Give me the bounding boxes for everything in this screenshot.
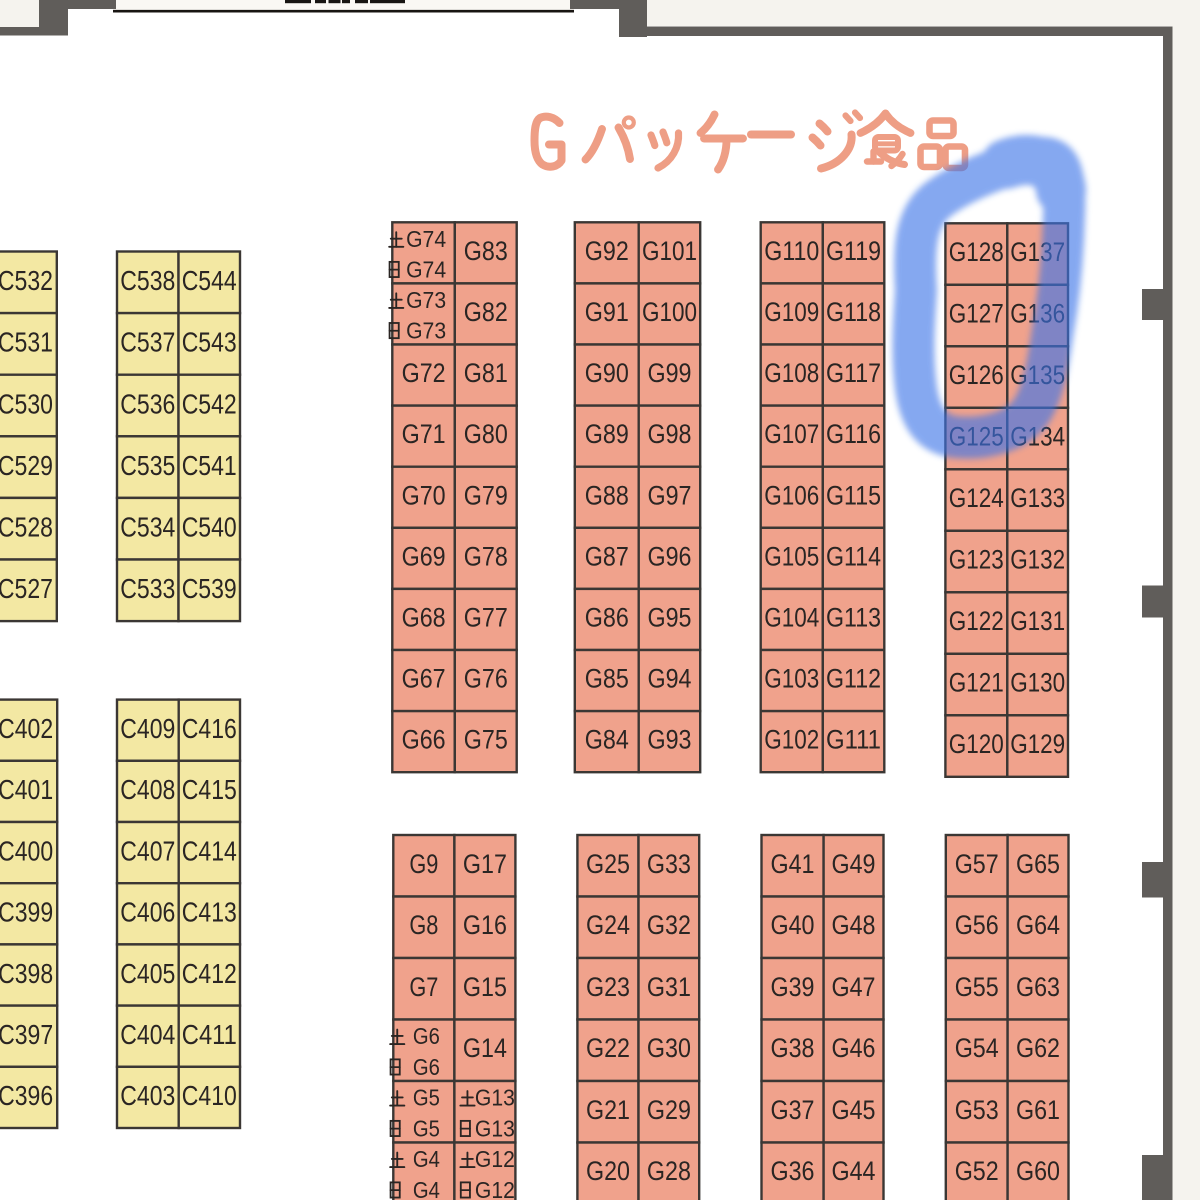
svg-text:G113: G113 — [826, 603, 881, 633]
svg-text:G5: G5 — [413, 1115, 440, 1141]
svg-text:G100: G100 — [642, 297, 697, 327]
svg-text:G20: G20 — [586, 1156, 630, 1186]
svg-text:G53: G53 — [955, 1095, 999, 1125]
svg-text:C397: C397 — [0, 1019, 53, 1050]
svg-text:G69: G69 — [402, 541, 446, 571]
svg-text:G80: G80 — [464, 419, 508, 449]
svg-text:G126: G126 — [949, 360, 1004, 390]
svg-text:G78: G78 — [464, 541, 508, 571]
svg-text:G128: G128 — [949, 237, 1004, 267]
svg-text:C540: C540 — [182, 512, 237, 543]
svg-text:G91: G91 — [585, 297, 629, 327]
svg-text:G9: G9 — [409, 849, 438, 879]
svg-text:G6: G6 — [413, 1054, 440, 1080]
svg-text:G5: G5 — [413, 1085, 440, 1111]
svg-text:G17: G17 — [463, 849, 507, 879]
svg-text:G124: G124 — [949, 483, 1004, 513]
svg-text:G66: G66 — [402, 725, 446, 755]
svg-text:G22: G22 — [586, 1033, 630, 1063]
svg-text:G72: G72 — [402, 358, 446, 388]
svg-text:G108: G108 — [764, 358, 819, 388]
svg-text:G45: G45 — [832, 1095, 876, 1125]
svg-text:G13: G13 — [475, 1085, 515, 1111]
svg-text:C542: C542 — [182, 388, 237, 419]
svg-text:G121: G121 — [949, 668, 1004, 698]
svg-text:G21: G21 — [586, 1095, 630, 1125]
svg-text:C416: C416 — [182, 713, 237, 744]
svg-text:C396: C396 — [0, 1080, 53, 1111]
svg-text:G116: G116 — [826, 419, 881, 449]
svg-text:G31: G31 — [647, 972, 691, 1002]
svg-text:G24: G24 — [586, 910, 630, 940]
svg-text:G86: G86 — [585, 603, 629, 633]
svg-text:G88: G88 — [585, 480, 629, 510]
svg-text:G130: G130 — [1010, 668, 1065, 698]
svg-text:G131: G131 — [1010, 606, 1065, 636]
svg-text:C404: C404 — [120, 1019, 175, 1050]
svg-text:G38: G38 — [771, 1033, 815, 1063]
svg-text:G99: G99 — [648, 358, 692, 388]
svg-text:G85: G85 — [585, 664, 629, 694]
svg-text:G4: G4 — [413, 1177, 440, 1200]
svg-text:C407: C407 — [120, 835, 175, 866]
svg-text:G75: G75 — [464, 725, 508, 755]
svg-text:C531: C531 — [0, 327, 53, 358]
svg-text:G57: G57 — [955, 849, 999, 879]
svg-text:G41: G41 — [771, 849, 815, 879]
svg-text:C415: C415 — [182, 774, 237, 805]
svg-text:G64: G64 — [1016, 910, 1060, 940]
svg-text:C539: C539 — [182, 573, 237, 604]
svg-text:G81: G81 — [464, 358, 508, 388]
svg-text:C411: C411 — [182, 1019, 237, 1050]
svg-text:G44: G44 — [832, 1156, 876, 1186]
svg-text:G54: G54 — [955, 1033, 999, 1063]
svg-text:G62: G62 — [1016, 1033, 1060, 1063]
svg-text:G132: G132 — [1010, 545, 1065, 575]
svg-text:G133: G133 — [1010, 483, 1065, 513]
svg-text:C399: C399 — [0, 897, 53, 928]
svg-text:C528: C528 — [0, 512, 53, 543]
svg-text:C408: C408 — [120, 774, 175, 805]
svg-text:C544: C544 — [182, 265, 237, 296]
svg-text:C534: C534 — [120, 512, 175, 543]
svg-text:C537: C537 — [120, 327, 175, 358]
svg-text:C410: C410 — [182, 1080, 237, 1111]
svg-text:G68: G68 — [402, 603, 446, 633]
svg-text:G13: G13 — [475, 1115, 515, 1141]
svg-text:G112: G112 — [826, 664, 881, 694]
svg-text:G47: G47 — [832, 972, 876, 1002]
svg-text:G83: G83 — [464, 236, 508, 266]
svg-text:G118: G118 — [826, 297, 881, 327]
svg-text:G97: G97 — [648, 480, 692, 510]
svg-text:G30: G30 — [647, 1033, 691, 1063]
svg-text:C401: C401 — [0, 774, 53, 805]
svg-text:G129: G129 — [1010, 729, 1065, 759]
svg-text:G94: G94 — [648, 664, 692, 694]
svg-text:G123: G123 — [949, 545, 1004, 575]
svg-text:G55: G55 — [955, 972, 999, 1002]
svg-text:G70: G70 — [402, 480, 446, 510]
svg-text:G122: G122 — [949, 606, 1004, 636]
svg-text:G71: G71 — [402, 419, 446, 449]
svg-text:G114: G114 — [826, 541, 881, 571]
svg-text:G84: G84 — [585, 725, 629, 755]
svg-text:G115: G115 — [826, 480, 881, 510]
svg-text:G110: G110 — [764, 236, 819, 266]
svg-text:G28: G28 — [647, 1156, 691, 1186]
svg-text:G120: G120 — [949, 729, 1004, 759]
svg-text:G12: G12 — [475, 1146, 515, 1172]
svg-text:G93: G93 — [648, 725, 692, 755]
svg-text:G82: G82 — [464, 297, 508, 327]
svg-text:G74: G74 — [406, 226, 446, 252]
svg-text:G98: G98 — [648, 419, 692, 449]
svg-text:G74: G74 — [406, 256, 446, 282]
svg-text:G101: G101 — [642, 236, 697, 266]
svg-text:G15: G15 — [463, 972, 507, 1002]
svg-text:C532: C532 — [0, 265, 53, 296]
svg-text:G7: G7 — [409, 972, 438, 1002]
svg-text:G37: G37 — [771, 1095, 815, 1125]
svg-text:C535: C535 — [120, 450, 175, 481]
svg-text:C527: C527 — [0, 573, 53, 604]
svg-text:C413: C413 — [182, 897, 237, 928]
svg-text:G77: G77 — [464, 603, 508, 633]
svg-text:C412: C412 — [182, 958, 237, 989]
svg-text:C538: C538 — [120, 265, 175, 296]
svg-text:G102: G102 — [764, 725, 819, 755]
svg-text:C529: C529 — [0, 450, 53, 481]
svg-text:G39: G39 — [771, 972, 815, 1002]
svg-text:G65: G65 — [1016, 849, 1060, 879]
svg-text:G12: G12 — [475, 1177, 515, 1200]
svg-text:G33: G33 — [647, 849, 691, 879]
svg-text:C543: C543 — [182, 327, 237, 358]
svg-text:C414: C414 — [182, 835, 237, 866]
svg-text:G79: G79 — [464, 480, 508, 510]
svg-text:G25: G25 — [586, 849, 630, 879]
svg-text:C403: C403 — [120, 1080, 175, 1111]
svg-text:C530: C530 — [0, 388, 53, 419]
svg-text:C409: C409 — [120, 713, 175, 744]
svg-text:G29: G29 — [647, 1095, 691, 1125]
svg-text:C536: C536 — [120, 388, 175, 419]
svg-text:G60: G60 — [1016, 1156, 1060, 1186]
svg-text:G32: G32 — [647, 910, 691, 940]
svg-text:G48: G48 — [832, 910, 876, 940]
svg-text:C398: C398 — [0, 958, 53, 989]
svg-text:G107: G107 — [764, 419, 819, 449]
svg-text:G104: G104 — [764, 603, 819, 633]
svg-text:C406: C406 — [120, 897, 175, 928]
svg-text:G76: G76 — [464, 664, 508, 694]
svg-text:G40: G40 — [771, 910, 815, 940]
svg-text:G90: G90 — [585, 358, 629, 388]
svg-text:G106: G106 — [764, 480, 819, 510]
svg-text:G56: G56 — [955, 910, 999, 940]
svg-text:C541: C541 — [182, 450, 237, 481]
svg-text:G89: G89 — [585, 419, 629, 449]
svg-text:G8: G8 — [409, 910, 438, 940]
svg-text:G111: G111 — [826, 725, 881, 755]
svg-text:C405: C405 — [120, 958, 175, 989]
svg-text:G6: G6 — [413, 1023, 440, 1049]
svg-text:G127: G127 — [949, 299, 1004, 329]
svg-text:G23: G23 — [586, 972, 630, 1002]
svg-text:G92: G92 — [585, 236, 629, 266]
svg-text:G61: G61 — [1016, 1095, 1060, 1125]
svg-text:G16: G16 — [463, 910, 507, 940]
svg-text:G63: G63 — [1016, 972, 1060, 1002]
svg-text:G119: G119 — [826, 236, 881, 266]
svg-text:G4: G4 — [413, 1146, 440, 1172]
svg-text:C400: C400 — [0, 835, 53, 866]
svg-text:G87: G87 — [585, 541, 629, 571]
svg-text:G105: G105 — [764, 541, 819, 571]
svg-text:G52: G52 — [955, 1156, 999, 1186]
svg-text:G14: G14 — [463, 1033, 507, 1063]
svg-text:G103: G103 — [764, 664, 819, 694]
svg-text:G73: G73 — [406, 287, 446, 313]
svg-text:G46: G46 — [832, 1033, 876, 1063]
svg-text:G67: G67 — [402, 664, 446, 694]
svg-text:G49: G49 — [832, 849, 876, 879]
svg-text:G117: G117 — [826, 358, 881, 388]
svg-text:G73: G73 — [406, 317, 446, 343]
svg-text:G95: G95 — [648, 603, 692, 633]
svg-text:G36: G36 — [771, 1156, 815, 1186]
svg-text:C402: C402 — [0, 713, 53, 744]
svg-text:G96: G96 — [648, 541, 692, 571]
svg-text:C533: C533 — [120, 573, 175, 604]
svg-text:G109: G109 — [764, 297, 819, 327]
